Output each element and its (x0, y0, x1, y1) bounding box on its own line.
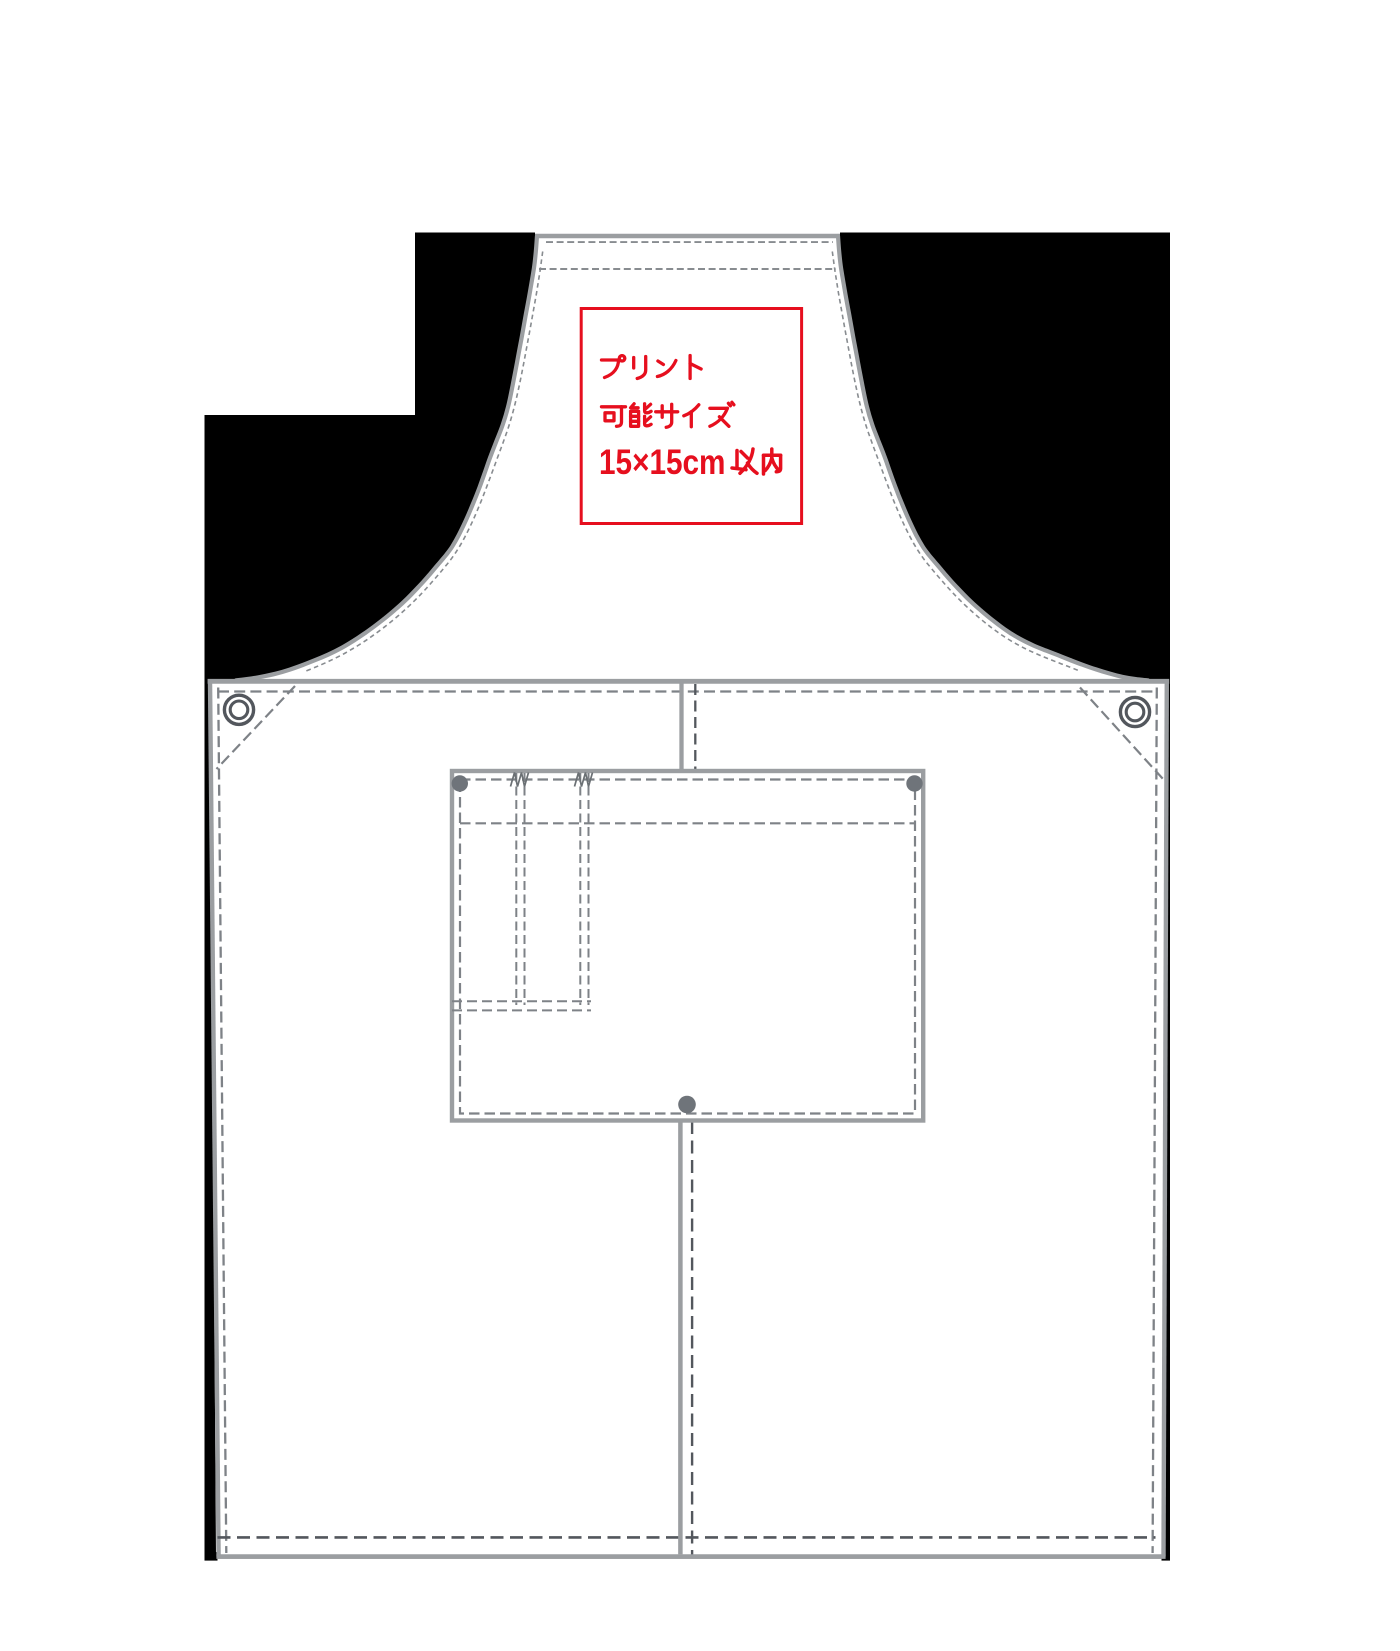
svg-text:15×15cm: 15×15cm (599, 443, 726, 482)
